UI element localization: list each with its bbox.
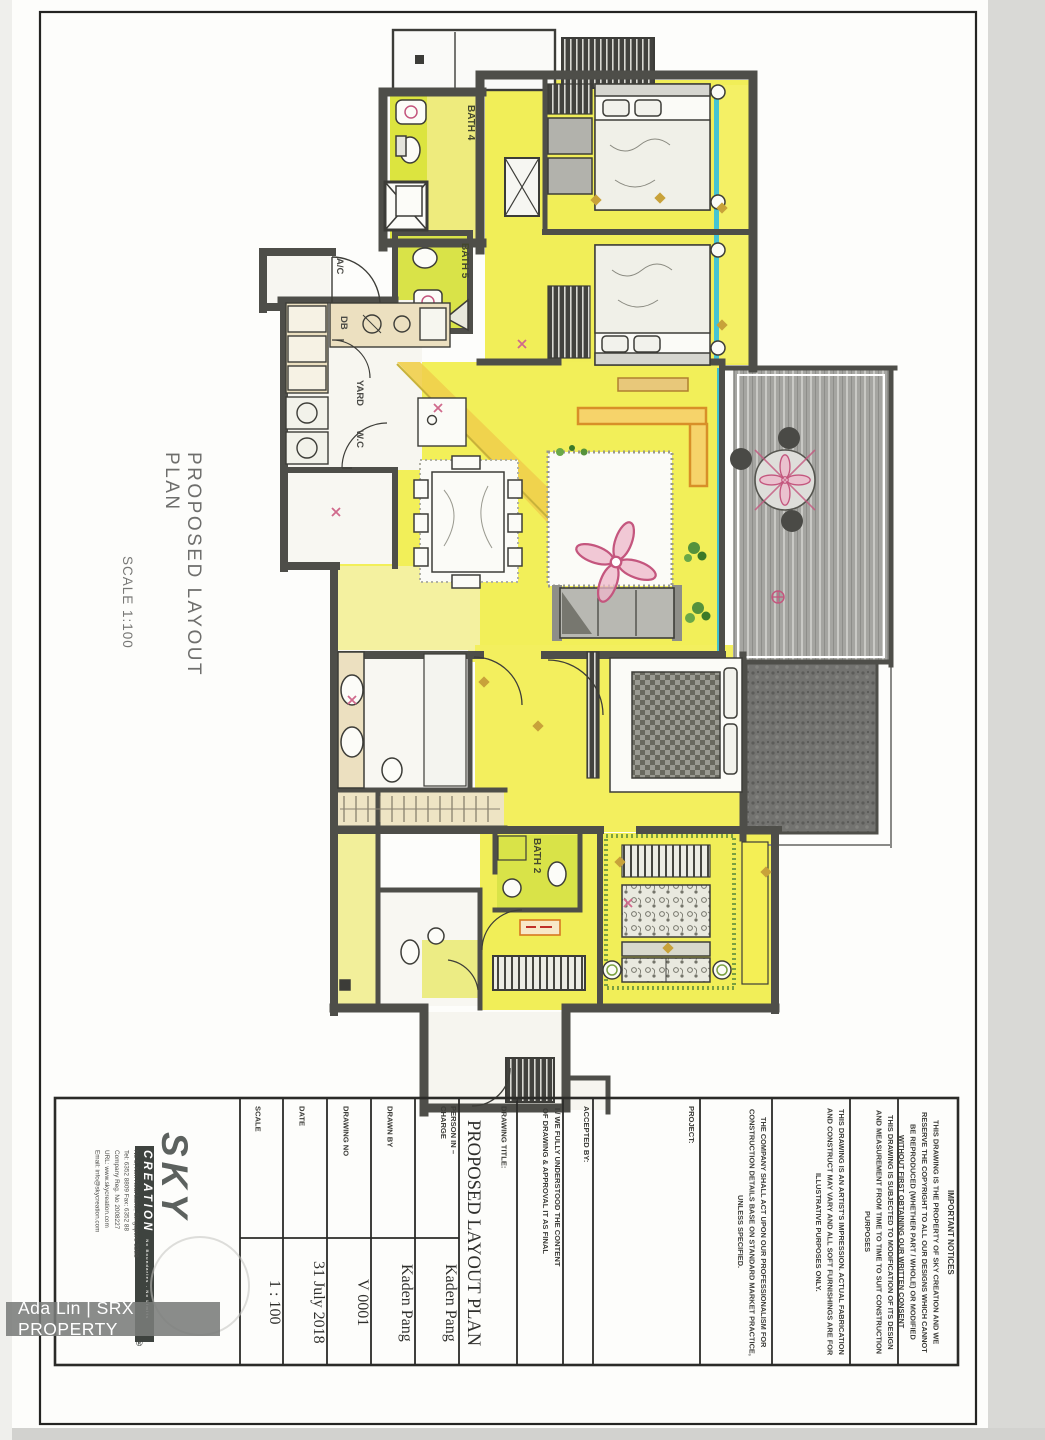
note-company: THE COMPANY SHALL ACT UPON OUR PROFESSIO… — [705, 1108, 769, 1356]
room-label-ac: A/C — [334, 258, 345, 275]
drawing-title: PROPOSED LAYOUT PLAN — [462, 1108, 483, 1358]
room-label-bath4: BATH 4 — [465, 105, 476, 141]
field-label-drawn-by: DRAWN BY — [384, 1106, 394, 1234]
drawing-title-label: DRAWING TITLE: — [498, 1106, 508, 1234]
balcony — [730, 370, 889, 662]
watermark-text: Ada Lin | SRX PROPERTY — [18, 1298, 220, 1340]
note-modification: THIS DRAWING IS SUBJECTED TO MODIFICATIO… — [854, 1108, 896, 1356]
room-label-db: DB — [338, 316, 349, 330]
bedroom-a — [548, 84, 725, 210]
important-notices-title: IMPORTANT NOTICES — [944, 1108, 956, 1356]
room-label-bath2: BATH 2 — [531, 838, 542, 874]
logo-brand-sub: CREATION — [141, 1150, 153, 1233]
page-title: PROPOSED LAYOUT PLAN — [160, 452, 204, 732]
room-label-wc: W.C — [354, 430, 365, 448]
bedroom-3 — [603, 836, 768, 988]
balcony-chair — [730, 448, 752, 470]
important-notices: IMPORTANT NOTICES THIS DRAWING IS THE PR… — [901, 1108, 956, 1356]
field-label-drawing-no: DRAWING NO — [340, 1106, 350, 1234]
balcony-chair — [781, 510, 803, 532]
declaration-text: I / WE FULLY UNDERSTOOD THE CONTENT OF D… — [521, 1108, 563, 1273]
room-label-yard: YARD — [354, 380, 365, 406]
note-artist-impression: THIS DRAWING IS AN ARTIST'S IMPRESSION. … — [777, 1108, 847, 1356]
balcony-chair — [778, 427, 800, 449]
page-scale: SCALE 1:100 — [120, 556, 135, 686]
room-label-bath5: BATH 5 — [459, 243, 470, 279]
field-label-person-in-charge: PERSON IN – CHARGE — [422, 1106, 458, 1166]
field-label-date: DATE — [296, 1106, 306, 1234]
void-area — [746, 662, 891, 848]
important-notices-body: THIS DRAWING IS THE PROPERTY OF SKY CREA… — [896, 1108, 942, 1356]
ac-ledge — [393, 30, 654, 90]
accepted-by-label: ACCEPTED BY: — [567, 1106, 591, 1266]
project-label: PROJECT: — [676, 1106, 696, 1266]
balcony-marker — [772, 591, 784, 603]
watermark: Ada Lin | SRX PROPERTY — [6, 1302, 220, 1336]
field-label-scale: SCALE — [252, 1106, 262, 1234]
